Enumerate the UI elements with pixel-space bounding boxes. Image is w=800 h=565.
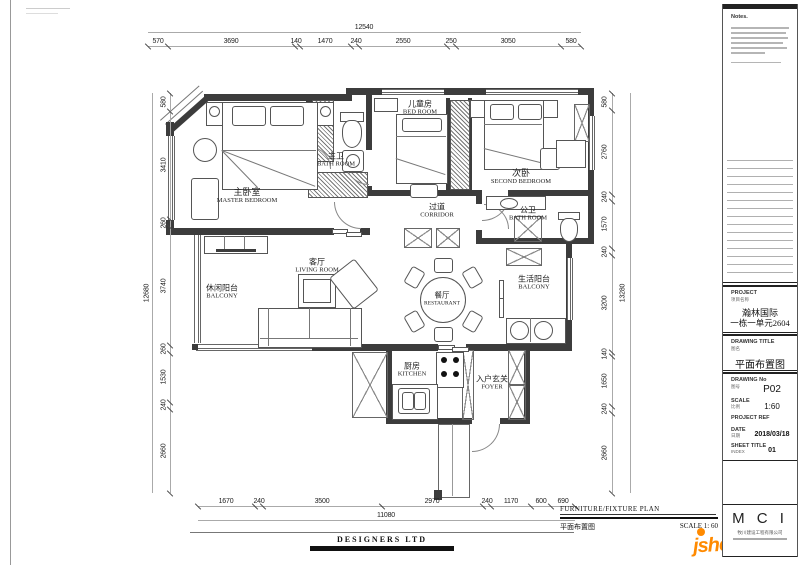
room-name-cn: 厨房 [398, 362, 427, 371]
sofa [350, 308, 351, 346]
dim-label: 2660 [161, 444, 168, 459]
designers-bar [310, 546, 454, 551]
dim-label: 240 [602, 246, 609, 257]
dining-chair [434, 258, 453, 273]
scale-label-cn: 比例 [731, 404, 740, 410]
toilet [560, 218, 578, 242]
divider [723, 556, 797, 557]
divider [723, 285, 797, 287]
dim-label: 240 [350, 38, 361, 45]
kitchen-sink [402, 392, 414, 410]
dim-label: 12540 [355, 24, 373, 31]
watermark-dot [697, 528, 705, 536]
scale-value: 1:60 [747, 402, 797, 411]
mci-logo-subline [733, 538, 787, 540]
room-label-service-balcony: 生活阳台BALCONY [518, 275, 550, 292]
pillow [402, 118, 442, 132]
dim-label: 580 [602, 96, 609, 107]
window [194, 235, 201, 343]
dim-label: 1530 [161, 370, 168, 385]
dim-label: 240 [602, 191, 609, 202]
dim-label: 11080 [377, 512, 395, 519]
room-name-cn: 客厅 [295, 258, 339, 267]
drawing-sheet: 主卧室MASTER BEDROOM 主卫BATH ROOM 儿童房BED ROO… [0, 0, 800, 565]
room-label-balcony: 休闲阳台BALCONY [206, 284, 238, 301]
room-label-corridor: 过道CORRIDOR [420, 203, 454, 220]
sliding-door [499, 298, 504, 318]
room-name-cn: 生活阳台 [518, 275, 550, 284]
seat [410, 184, 438, 198]
dim-label: 3410 [161, 158, 168, 173]
sheet-border-left [10, 0, 11, 565]
date-label-cn: 日期 [731, 433, 740, 439]
dim-line [170, 93, 171, 493]
dim-label: 1570 [602, 217, 609, 232]
nightstand [470, 100, 485, 118]
dim-label: 250 [445, 38, 456, 45]
window [382, 89, 444, 95]
cabinet [574, 104, 590, 142]
dim-label: 2550 [396, 38, 411, 45]
divider [723, 372, 797, 374]
divider [723, 460, 797, 461]
dim-label: 260 [161, 343, 168, 354]
wall [392, 344, 438, 351]
designers-text: DESIGNERS LTD [308, 535, 456, 544]
room-name-en: MASTER BEDROOM [217, 197, 278, 204]
wardrobe [450, 100, 470, 190]
dim-label: 1670 [219, 498, 234, 505]
dim-label: 2760 [602, 145, 609, 160]
title-block-bar [723, 4, 797, 9]
wall [192, 344, 198, 350]
dim-line [148, 32, 581, 33]
room-name-en: SECOND BEDROOM [491, 178, 551, 185]
sofa [268, 308, 269, 346]
wall [346, 88, 352, 101]
cabinet [436, 228, 460, 248]
plan-title-cn: 平面布置图 [560, 522, 595, 532]
kitchen-sink [414, 392, 426, 410]
dim-label: 240 [481, 498, 492, 505]
project-label-cn: 项目名称 [731, 297, 749, 303]
stool [193, 138, 217, 162]
dim-line [148, 46, 581, 47]
room-name-cn: 主卧室 [217, 187, 278, 197]
nightstand [543, 100, 558, 118]
wall [366, 94, 372, 150]
washer [534, 321, 553, 340]
room-label-foyer: 入户玄关FOYER [476, 375, 508, 392]
dim-label: 240 [602, 403, 609, 414]
dining-chair [403, 310, 425, 334]
room-name-cn: 儿童房 [403, 100, 437, 109]
room-name-cn: 过道 [420, 203, 454, 212]
plan-scale: SCALE 1: 60 [660, 522, 718, 530]
lamp [209, 106, 220, 117]
plan-title-en: FURNITURE/FIXTURE PLAN [560, 505, 660, 513]
shoe-cabinet [508, 350, 526, 386]
room-name-cn: 餐厅 [424, 292, 460, 301]
revision-table [727, 160, 793, 280]
coffee-table [303, 279, 331, 303]
room-label-children: 儿童房BED ROOM [403, 100, 437, 117]
desk [556, 140, 586, 168]
stair-shaft [452, 424, 453, 496]
tv [216, 249, 256, 252]
corner-mark [26, 13, 58, 14]
room-name-en: RESTAURANT [424, 300, 460, 306]
room-name-en: BED ROOM [403, 109, 437, 116]
room-label-public-bath: 公卫BATH ROOM [509, 206, 547, 223]
room-name-en: FOYER [476, 384, 508, 391]
burner [453, 371, 459, 377]
divider [723, 332, 797, 333]
flue-shaft [352, 352, 388, 418]
room-name-en: LIVING ROOM [295, 267, 339, 274]
blanket-line [222, 150, 316, 151]
cabinet [404, 228, 432, 248]
dim-line [630, 93, 631, 493]
sliding-door [346, 232, 362, 237]
sheet-index-value: 01 [747, 447, 797, 454]
project-unit: 一栋一单元2604 [723, 317, 797, 329]
door-arc [334, 202, 361, 229]
drawing-title-label-cn: 图名 [731, 346, 740, 352]
dim-label: 2660 [602, 446, 609, 461]
room-label-kitchen: 厨房KITCHEN [398, 362, 427, 379]
dining-chair [461, 266, 483, 290]
room-name-en: BALCONY [206, 293, 238, 300]
pillow [232, 106, 266, 126]
dim-label: 1470 [318, 38, 333, 45]
window [567, 258, 573, 320]
divider [723, 334, 797, 336]
drawing-no-value: P02 [747, 384, 797, 395]
wall [476, 230, 482, 244]
notes-title: Notes. [731, 14, 748, 20]
divider [723, 370, 797, 371]
dim-label: 580 [565, 38, 576, 45]
dim-label: 1170 [504, 498, 518, 505]
room-name-cn: 入户玄关 [476, 375, 508, 384]
dining-chair [461, 310, 483, 334]
corner-mark [26, 8, 70, 9]
divider [723, 282, 797, 283]
toilet [342, 120, 362, 148]
room-label-master: 主卧室MASTER BEDROOM [217, 187, 278, 205]
mci-logo: M C I [723, 510, 797, 527]
armchair [191, 178, 219, 220]
footer-line [560, 517, 718, 519]
divider [723, 504, 797, 505]
dim-label: 12680 [144, 284, 151, 302]
drawing-title-label: DRAWING TITLE [731, 339, 774, 345]
desk [374, 98, 398, 112]
stove [436, 352, 464, 388]
room-name-en: BATH ROOM [317, 161, 355, 168]
room-label-master-bath: 主卫BATH ROOM [317, 152, 355, 169]
shoe-cabinet [508, 384, 526, 420]
pillow [270, 106, 304, 126]
wall [588, 194, 594, 244]
room-label-second: 次卧SECOND BEDROOM [491, 168, 551, 186]
wall [166, 228, 334, 235]
dim-label: 3200 [602, 296, 609, 311]
dim-label: 1650 [602, 374, 609, 389]
room-name-en: KITCHEN [398, 371, 427, 378]
wall [524, 344, 572, 351]
dining-chair [434, 327, 453, 342]
pillow [490, 104, 514, 120]
dim-label: 140 [602, 348, 609, 359]
dim-label: 3740 [161, 279, 168, 294]
footer-line [190, 532, 574, 533]
blanket-line [396, 136, 446, 137]
sliding-door [499, 280, 504, 300]
stair-shaft [438, 424, 470, 498]
laundry-cabinet [530, 318, 531, 342]
dim-label: 580 [161, 96, 168, 107]
sofa [309, 308, 310, 338]
dim-label: 2970 [425, 498, 440, 505]
dim-label: 3690 [224, 38, 239, 45]
mci-logo-sub: 牧川建设工程有限公司 [723, 530, 797, 536]
title-block: Notes. PROJECT 项目名称 瀚林国际 一栋一单元2604 DRAWI… [722, 4, 798, 557]
dim-label: 13280 [620, 284, 627, 302]
notes-paragraph [731, 24, 789, 63]
room-name-cn: 主卫 [317, 152, 355, 161]
room-name-en: BALCONY [518, 284, 550, 291]
cabinet [506, 248, 542, 266]
dim-label: 3500 [315, 498, 330, 505]
room-label-restaurant: 餐厅RESTAURANT [424, 292, 460, 307]
burner [441, 357, 447, 363]
dim-line [198, 520, 575, 521]
sofa [260, 338, 358, 339]
room-name-cn: 次卧 [491, 168, 551, 178]
burner [453, 357, 459, 363]
washer [510, 321, 529, 340]
room-name-en: CORRIDOR [420, 212, 454, 219]
dim-label: 260 [161, 217, 168, 228]
dim-label: 240 [161, 399, 168, 410]
dim-label: 570 [152, 38, 163, 45]
room-name-en: BATH ROOM [509, 215, 547, 222]
window [486, 89, 578, 95]
lamp [320, 106, 331, 117]
dim-label: 240 [253, 498, 264, 505]
drawing-title-value: 平面布置图 [723, 356, 797, 371]
project-label: PROJECT [731, 290, 757, 296]
blanket-line [484, 124, 542, 125]
dim-label: 3050 [501, 38, 516, 45]
drawing-no-label: DRAWING No [731, 377, 766, 383]
burner [441, 371, 447, 377]
dining-chair [403, 266, 425, 290]
drawing-no-label-cn: 图号 [731, 384, 740, 390]
dim-line [152, 93, 153, 493]
dim-label: 600 [535, 498, 546, 505]
date-value: 2018/03/18 [747, 431, 797, 438]
dim-label: 690 [557, 498, 568, 505]
sheet-index-label: INDEX [731, 449, 745, 454]
dim-label: 140 [290, 38, 301, 45]
sofa [258, 308, 362, 348]
footer-line [560, 514, 716, 515]
pillow [518, 104, 542, 120]
room-label-living: 客厅LIVING ROOM [295, 258, 339, 275]
door-arc [472, 424, 500, 452]
dim-line [612, 93, 613, 493]
room-name-cn: 休闲阳台 [206, 284, 238, 293]
project-ref-label: PROJECT REF [731, 415, 770, 421]
room-name-cn: 公卫 [509, 206, 547, 215]
